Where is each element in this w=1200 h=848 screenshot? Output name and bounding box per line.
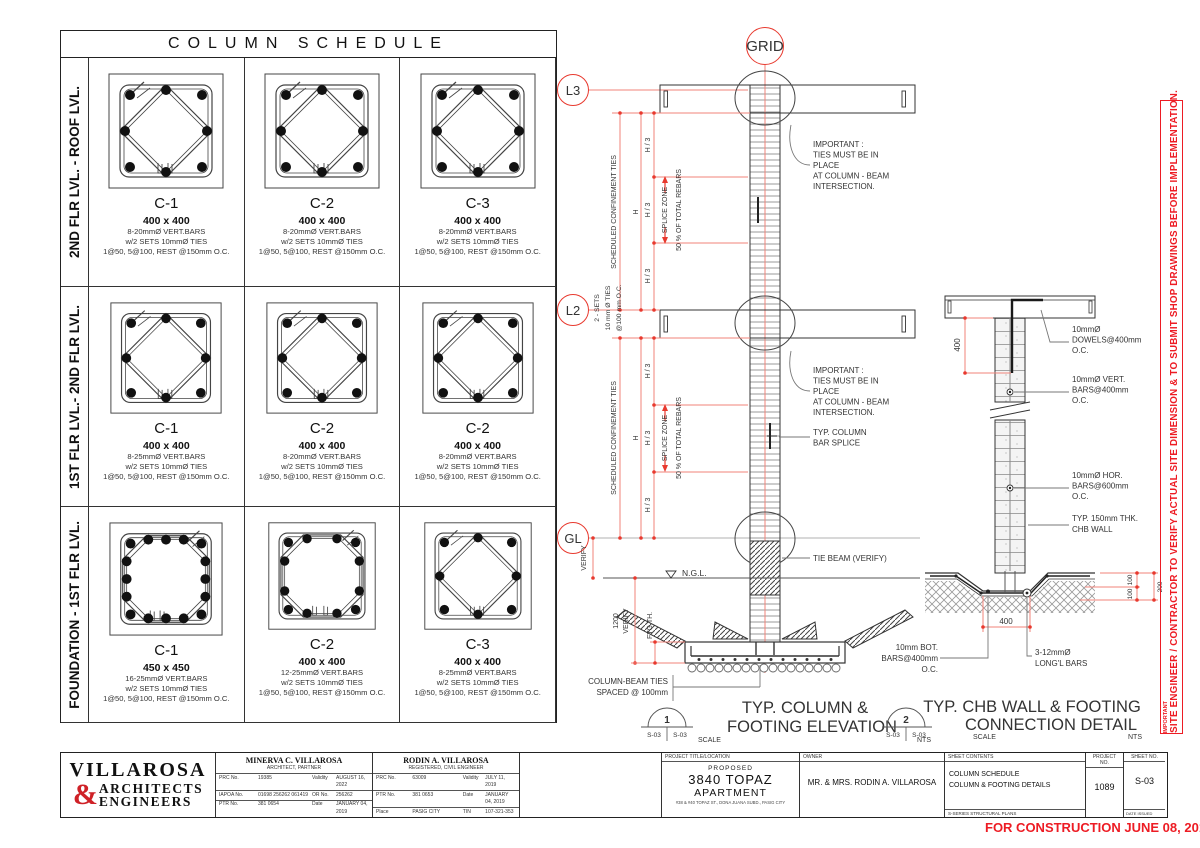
- column-name: C-1: [154, 195, 178, 212]
- label-line: 10mmØ HOR.: [1072, 471, 1123, 480]
- project-title-cell: PROJECT TITLE/LOCATION PROPOSED 3840 TOP…: [662, 753, 800, 817]
- vert-bars-label: 10mmØ VERT. BARS@400mm O.C.: [1014, 375, 1129, 405]
- confinement-label: SCHEDULED CONFINEMENT TIES: [611, 155, 618, 269]
- h3-label: H / 3: [645, 364, 652, 379]
- column-size: 400 x 400: [299, 656, 346, 668]
- note-line: IMPORTANT :: [813, 366, 864, 375]
- label-line: 10mmØ: [1072, 325, 1100, 334]
- tie-beam-text: TIE BEAM (VERIFY): [813, 554, 887, 563]
- engineer-cell: RODIN A. VILLAROSA REGISTERED, CIVIL ENG…: [373, 753, 520, 817]
- detail-sheet-ref: S-03: [647, 732, 661, 739]
- dim-labels-story2: SCHEDULED CONFINEMENT TIES H H / 3 H / 3…: [611, 364, 683, 513]
- project-no-value: 1089: [1086, 782, 1123, 792]
- label-line: O.C.: [1072, 492, 1088, 501]
- sheet-no-cell: SHEET NO. S-03 DATE ISSUED: [1124, 753, 1165, 817]
- column-spec: 1@50, 5@100, REST @150mm O.C.: [259, 688, 385, 698]
- column-spec: 1@50, 5@100, REST @150mm O.C.: [103, 694, 229, 704]
- drawing-title-line1: TYP. COLUMN &: [742, 699, 868, 717]
- engineer-name: RODIN A. VILLAROSA: [373, 756, 519, 765]
- note-line: INTERSECTION.: [813, 408, 875, 417]
- contents-footer: S-SERIES STRUCTURAL PLANS: [945, 809, 1085, 817]
- l2-label: L2: [566, 303, 580, 318]
- column-section-drawing: [420, 300, 536, 416]
- detail-sheet-ref: S-03: [673, 732, 687, 739]
- dims-below-gl: VERIFY 1200 VERIFY FTG TH.: [581, 536, 685, 665]
- column-section-drawing: [422, 520, 534, 632]
- column-size: 400 x 400: [299, 440, 346, 452]
- chb-wall: [990, 300, 1043, 573]
- firm-logo-cell: VILLAROSA & ARCHITECTS ENGINEERS: [61, 753, 216, 817]
- column-name: C-3: [466, 636, 490, 653]
- column-spec: w/2 SETS 10mmØ TIES: [437, 237, 519, 247]
- firm-line3: ENGINEERS: [99, 794, 192, 809]
- note-line: TIES MUST BE IN: [813, 151, 879, 160]
- label-line: LONG'L BARS: [1035, 659, 1087, 668]
- dowels-label: 10mmØ DOWELS@400mm O.C.: [1041, 310, 1142, 355]
- column-section-drawing: [266, 520, 378, 632]
- column-spec: 8-20mmØ VERT.BARS: [439, 452, 517, 462]
- label-line: TYP. 150mm THK.: [1072, 514, 1138, 523]
- column-section-drawing: [418, 71, 538, 191]
- column-spec: 1@50, 5@100, REST @150mm O.C.: [259, 472, 385, 482]
- tie-beam-label: TIE BEAM (VERIFY): [782, 554, 887, 563]
- column-spec: 8-25mmØ VERT.BARS: [439, 668, 517, 678]
- importance-note-2: IMPORTANT : TIES MUST BE IN PLACE AT COL…: [790, 351, 890, 417]
- owner-header: OWNER: [800, 753, 944, 762]
- ngl-label: N.G.L.: [682, 568, 707, 578]
- l3-label: L3: [566, 83, 580, 98]
- label-line: 10mmØ VERT.: [1072, 375, 1125, 384]
- column-size: 400 x 400: [454, 656, 501, 668]
- tie-beam: [750, 541, 780, 595]
- column-size: 400 x 400: [299, 215, 346, 227]
- column-spec: 1@50, 5@100, REST @150mm O.C.: [414, 472, 540, 482]
- title-block: VILLAROSA & ARCHITECTS ENGINEERS MINERVA…: [60, 752, 1168, 818]
- label-line: BARS@400mm: [1072, 386, 1129, 395]
- project-line1: PROPOSED: [662, 765, 799, 772]
- column-spec: 16-25mmØ VERT.BARS: [125, 674, 207, 684]
- dim-labels-story1: SCHEDULED CONFINEMENT TIES H H / 3 H / 3…: [611, 138, 683, 284]
- label-line: O.C.: [922, 665, 938, 674]
- verify-label: VERIFY: [623, 608, 630, 634]
- detail-number: 1: [664, 715, 670, 726]
- schedule-cell: C-3 400 x 400 8-25mmØ VERT.BARS w/2 SETS…: [400, 507, 556, 723]
- column-spec: 8-20mmØ VERT.BARS: [439, 227, 517, 237]
- level-label-second: 1ST FLR LVL.- 2ND FLR LVL.: [61, 287, 89, 507]
- note-line: IMPORTANT :: [813, 140, 864, 149]
- architect-name: MINERVA C. VILLAROSA: [216, 756, 372, 765]
- chb-wall-footing-detail-drawing: 400 10mmØ DOWELS@400mm O.C. 10mmØ VERT. …: [880, 280, 1180, 750]
- footing: [685, 642, 845, 672]
- h3-label: H / 3: [645, 431, 652, 446]
- two-sets-ties-label: 2 - SETS 10 mm Ø TIES @100 mm O.C.: [594, 284, 623, 331]
- column-size: 400 x 400: [454, 215, 501, 227]
- h3-label: H / 3: [645, 269, 652, 284]
- hor-bars-label: 10mmØ HOR. BARS@600mm O.C.: [1014, 471, 1129, 501]
- detail-sheet-ref: S-03: [886, 732, 900, 739]
- signature-cell: [520, 753, 662, 817]
- contents-line2: COLUMN & FOOTING DETAILS: [949, 781, 1081, 792]
- column-spec: 1@50, 5@100, REST @150mm O.C.: [259, 247, 385, 257]
- column-size: 400 x 400: [454, 440, 501, 452]
- note-line: TIES MUST BE IN: [813, 377, 879, 386]
- label-line: 10mm BOT.: [896, 643, 938, 652]
- schedule-cell: C-3 400 x 400 8-20mmØ VERT.BARS w/2 SETS…: [400, 58, 556, 287]
- h3-label: H / 3: [645, 498, 652, 513]
- column-name: C-2: [310, 420, 334, 437]
- column-section-drawing: [262, 71, 382, 191]
- splice-zone-label: SPLICE ZONE: [662, 187, 669, 234]
- column-spec: w/2 SETS 10mmØ TIES: [281, 237, 363, 247]
- bar-splice-label: TYP. COLUMN BAR SPLICE: [779, 428, 867, 448]
- verify-label: VERIFY: [581, 545, 588, 571]
- date-issued-label: DATE ISSUED: [1124, 809, 1165, 817]
- schedule-cell: C-1 400 x 400 8-20mmØ VERT.BARS w/2 SETS…: [89, 58, 245, 287]
- architect-cell: MINERVA C. VILLAROSA ARCHITECT, PARTNER …: [216, 753, 373, 817]
- column-spec: 1@50, 5@100, REST @150mm O.C.: [414, 688, 540, 698]
- column-schedule-table: COLUMN SCHEDULE 2ND FLR LVL. - ROOF LVL.…: [60, 30, 557, 723]
- drawing-sheet: COLUMN SCHEDULE 2ND FLR LVL. - ROOF LVL.…: [0, 0, 1200, 848]
- scale-label: SCALE: [973, 734, 996, 741]
- level-bubble-gl: GL: [558, 523, 921, 554]
- column-name: C-2: [310, 195, 334, 212]
- important-text: SITE ENGINEER / CONTRACTOR TO VERIFY ACT…: [1169, 90, 1180, 733]
- column-section-drawing: [264, 300, 380, 416]
- engineer-role: REGISTERED, CIVIL ENGINEER: [373, 765, 519, 771]
- dim-100: 100: [1127, 588, 1134, 599]
- label-line: BARS@400mm: [881, 654, 938, 663]
- column-spec: w/2 SETS 10mmØ TIES: [281, 462, 363, 472]
- column-name: C-2: [466, 420, 490, 437]
- column-size: 450 x 450: [143, 662, 190, 674]
- schedule-cell: C-2 400 x 400 8-20mmØ VERT.BARS w/2 SETS…: [245, 287, 401, 507]
- label-line: BARS@600mm: [1072, 482, 1129, 491]
- firm-name: VILLAROSA: [70, 760, 207, 780]
- schedule-cell: C-1 400 x 400 8-25mmØ VERT.BARS w/2 SETS…: [89, 287, 245, 507]
- column-spec: w/2 SETS 10mmØ TIES: [125, 237, 207, 247]
- column-spec: w/2 SETS 10mmØ TIES: [125, 684, 207, 694]
- label-line: CHB WALL: [1072, 525, 1113, 534]
- nts-label: NTS: [1128, 734, 1142, 741]
- splice-zone-label: SPLICE ZONE: [662, 415, 669, 462]
- dim-1200: 1200: [613, 613, 620, 629]
- drawing-title-line1: TYP. CHB WALL & FOOTING: [923, 698, 1141, 716]
- contents-line1: COLUMN SCHEDULE: [949, 770, 1081, 781]
- cb-line1: COLUMN-BEAM TIES: [588, 677, 668, 686]
- project-address: #38 & #40 TOPAZ ST., DONA JUANA SUBD., P…: [662, 800, 799, 805]
- dim-100: 100: [1127, 574, 1134, 585]
- rebars-label: 50 % OF TOTAL REBARS: [676, 169, 683, 251]
- detail-number: 2: [903, 715, 909, 726]
- sets-line2: 10 mm Ø TIES: [605, 285, 612, 330]
- note-line: AT COLUMN - BEAM: [813, 398, 889, 407]
- level-label-roof: 2ND FLR LVL. - ROOF LVL.: [61, 58, 89, 287]
- column-spec: 8-20mmØ VERT.BARS: [283, 227, 361, 237]
- gravel-bed: [688, 664, 840, 672]
- sheet-no-value: S-03: [1124, 776, 1165, 786]
- sets-line3: @100 mm O.C.: [616, 284, 623, 331]
- project-no-header: PROJECT NO.: [1086, 753, 1123, 768]
- project-no-cell: PROJECT NO. 1089: [1086, 753, 1124, 817]
- project-line2: 3840 TOPAZ: [662, 772, 799, 787]
- dim-400b: 400: [999, 617, 1013, 626]
- dim-400: 400: [953, 338, 962, 352]
- important-site-note: IMPORTANT SITE ENGINEER / CONTRACTOR TO …: [1160, 100, 1183, 734]
- contents-header: SHEET CONTENTS: [945, 753, 1085, 762]
- column-spec: w/2 SETS 10mmØ TIES: [437, 678, 519, 688]
- gl-label: GL: [564, 531, 581, 546]
- chb-wall-label: TYP. 150mm THK. CHB WALL: [1028, 514, 1138, 534]
- beam-l2: [660, 310, 915, 338]
- drawing-title-line2: CONNECTION DETAIL: [965, 716, 1137, 734]
- note-line: PLACE: [813, 387, 839, 396]
- sets-line1: 2 - SETS: [594, 294, 601, 322]
- drawing-title-line2: FOOTING ELEVATION: [727, 718, 897, 736]
- owner-cell: OWNER MR. & MRS. RODIN A. VILLAROSA: [800, 753, 945, 817]
- sheet-contents-cell: SHEET CONTENTS COLUMN SCHEDULE COLUMN & …: [945, 753, 1086, 817]
- column-name: C-1: [154, 420, 178, 437]
- column-spec: w/2 SETS 10mmØ TIES: [281, 678, 363, 688]
- rebars-label: 50 % OF TOTAL REBARS: [676, 397, 683, 479]
- column-spec: w/2 SETS 10mmØ TIES: [125, 462, 207, 472]
- column-section-drawing: [108, 300, 224, 416]
- column-section-drawing: [106, 71, 226, 191]
- column-spec: 8-25mmØ VERT.BARS: [127, 452, 205, 462]
- column-name: C-2: [310, 636, 334, 653]
- column-spec: 1@50, 5@100, REST @150mm O.C.: [103, 247, 229, 257]
- cb-line2: SPACED @ 100mm: [596, 688, 668, 697]
- h3-label: H / 3: [645, 138, 652, 153]
- schedule-title: COLUMN SCHEDULE: [61, 31, 556, 58]
- beam-l3: [660, 85, 915, 113]
- column-section-drawing: [105, 520, 227, 638]
- level-label-foundation: FOUNDATION - 1ST FLR LVL.: [61, 507, 89, 723]
- h-label: H: [633, 209, 640, 214]
- label-line: DOWELS@400mm: [1072, 336, 1142, 345]
- grid-label: GRID: [746, 38, 784, 55]
- column-spec: 12-25mmØ VERT.BARS: [281, 668, 363, 678]
- column-size: 400 x 400: [143, 215, 190, 227]
- splice-line2: BAR SPLICE: [813, 439, 860, 448]
- label-line: O.C.: [1072, 396, 1088, 405]
- note-line: INTERSECTION.: [813, 182, 875, 191]
- sheet-no-header: SHEET NO.: [1124, 753, 1165, 762]
- scale-label: SCALE: [698, 737, 721, 744]
- schedule-cell: C-2 400 x 400 12-25mmØ VERT.BARS w/2 SET…: [245, 507, 401, 723]
- confinement-label: SCHEDULED CONFINEMENT TIES: [611, 381, 618, 495]
- chb-title: 2 S-03 S-03 TYP. CHB WALL & FOOTING CONN…: [882, 698, 1142, 741]
- column-name: C-3: [466, 195, 490, 212]
- column-spec: 1@50, 5@100, REST @150mm O.C.: [103, 472, 229, 482]
- h-label: H: [633, 435, 640, 440]
- column-name: C-1: [154, 642, 178, 659]
- detail-sheet-ref: S-03: [912, 732, 926, 739]
- schedule-cell: C-2 400 x 400 8-20mmØ VERT.BARS w/2 SETS…: [245, 58, 401, 287]
- ampersand-logo: &: [73, 780, 98, 810]
- project-line3: APARTMENT: [662, 787, 799, 799]
- column-size: 400 x 400: [143, 440, 190, 452]
- wall-footing: [925, 571, 1095, 613]
- importance-note-1: IMPORTANT : TIES MUST BE IN PLACE AT COL…: [790, 125, 890, 191]
- ftg-th-label: FTG TH.: [647, 612, 654, 639]
- h3-label: H / 3: [645, 203, 652, 218]
- column-spec: 8-20mmØ VERT.BARS: [127, 227, 205, 237]
- for-construction-stamp: FOR CONSTRUCTION JUNE 08, 2019: [985, 820, 1170, 835]
- architect-role: ARCHITECT, PARTNER: [216, 765, 372, 771]
- column-spec: 8-20mmØ VERT.BARS: [283, 452, 361, 462]
- firm-logo: VILLAROSA & ARCHITECTS ENGINEERS: [61, 753, 215, 817]
- note-line: AT COLUMN - BEAM: [813, 172, 889, 181]
- note-line: PLACE: [813, 161, 839, 170]
- schedule-cell: C-1 450 x 450 16-25mmØ VERT.BARS w/2 SET…: [89, 507, 245, 723]
- label-line: 3-12mmØ: [1035, 648, 1071, 657]
- column-spec: 1@50, 5@100, REST @150mm O.C.: [414, 247, 540, 257]
- splice-line1: TYP. COLUMN: [813, 428, 867, 437]
- column-spec: w/2 SETS 10mmØ TIES: [437, 462, 519, 472]
- schedule-cell: C-2 400 x 400 8-20mmØ VERT.BARS w/2 SETS…: [400, 287, 556, 507]
- project-header: PROJECT TITLE/LOCATION: [662, 753, 799, 762]
- label-line: O.C.: [1072, 346, 1088, 355]
- owner-name: MR. & MRS. RODIN A. VILLAROSA: [800, 778, 944, 787]
